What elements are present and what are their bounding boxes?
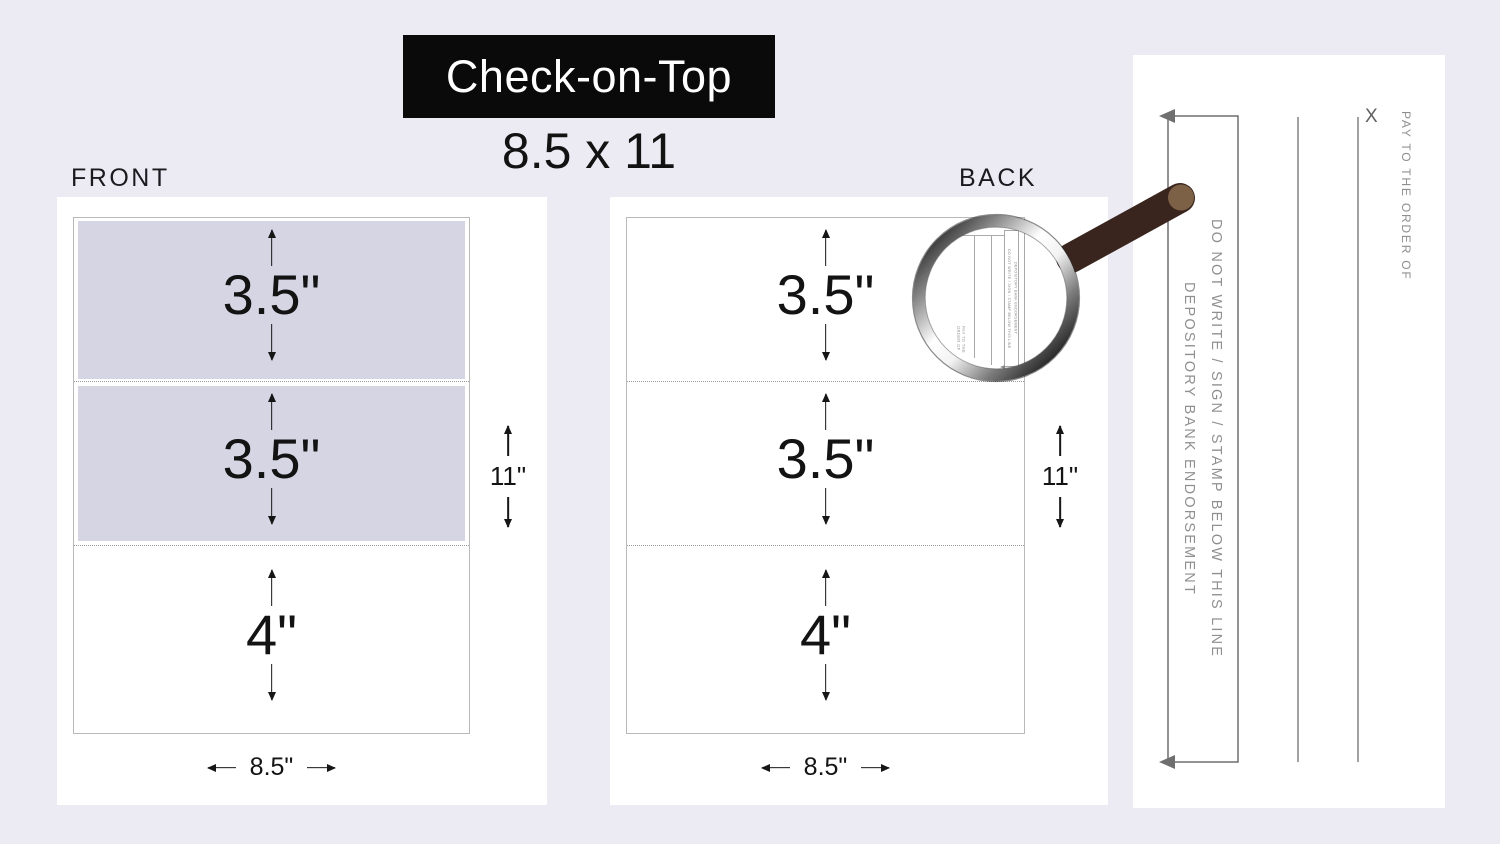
down-arrow-icon bbox=[819, 324, 832, 360]
up-arrow-icon bbox=[819, 570, 832, 606]
up-arrow-icon bbox=[502, 426, 515, 456]
left-arrow-icon bbox=[762, 762, 790, 773]
do-not-write-line: DO NOT WRITE / SIGN / STAMP BELOW THIS L… bbox=[1202, 116, 1229, 762]
front-width-dimension: 8.5" bbox=[73, 753, 470, 782]
dimension-label: 8.5" bbox=[804, 753, 848, 782]
endorsement-line bbox=[974, 235, 975, 358]
down-arrow-icon bbox=[265, 664, 278, 700]
right-arrow-icon bbox=[307, 762, 335, 773]
up-arrow-icon bbox=[265, 570, 278, 606]
pay-to-the-order-of-label: PAY TO THE ORDER OF bbox=[1399, 111, 1413, 281]
title-banner: Check-on-Top bbox=[403, 35, 775, 118]
down-arrow-icon bbox=[819, 664, 832, 700]
down-arrow-icon bbox=[502, 497, 515, 527]
down-arrow-icon bbox=[1054, 497, 1067, 527]
endorsement-panel: X PAY TO THE ORDER OF DO NOT WRITE / SIG… bbox=[1133, 55, 1445, 808]
dimension-label: 3.5" bbox=[777, 433, 875, 485]
up-arrow-icon bbox=[265, 230, 278, 266]
front-card: 3.5" 3.5" 4" 11" 8.5" bbox=[57, 197, 547, 805]
down-arrow-icon bbox=[265, 488, 278, 524]
back-height-dimension: 11" bbox=[1038, 426, 1082, 527]
sheet-edge-line bbox=[1024, 227, 1025, 369]
back-section2-dimension: 3.5" bbox=[627, 394, 1024, 524]
perforation-line bbox=[627, 381, 1024, 382]
dimension-label: 3.5" bbox=[223, 433, 321, 485]
perforation-line bbox=[74, 381, 469, 382]
down-arrow-icon bbox=[819, 488, 832, 524]
left-arrow-icon bbox=[208, 762, 236, 773]
front-height-dimension: 11" bbox=[486, 426, 530, 527]
dimension-label: 4" bbox=[800, 609, 851, 661]
page-title: Check-on-Top bbox=[446, 51, 732, 103]
check-on-top-infographic: Check-on-Top 8.5 x 11 FRONT BACK 3.5" 3.… bbox=[0, 0, 1500, 844]
signature-x-mark-small: x bbox=[956, 357, 959, 363]
back-section3-dimension: 4" bbox=[627, 570, 1024, 700]
front-section2-dimension: 3.5" bbox=[74, 394, 469, 524]
front-section3-dimension: 4" bbox=[74, 570, 469, 700]
magnifier-lens-view: PAY TO THE ORDER OF x DO NOT WRITE / SIG… bbox=[925, 227, 1067, 369]
right-arrow-icon bbox=[861, 762, 889, 773]
up-arrow-icon bbox=[1054, 426, 1067, 456]
back-width-dimension: 8.5" bbox=[626, 753, 1025, 782]
up-arrow-icon bbox=[819, 230, 832, 266]
dimension-label: 8.5" bbox=[250, 753, 294, 782]
dimension-label: 3.5" bbox=[777, 269, 875, 321]
signature-x-mark: X bbox=[1365, 106, 1378, 128]
back-heading: BACK bbox=[959, 164, 1037, 193]
front-heading: FRONT bbox=[71, 164, 170, 193]
do-not-write-line-small: DO NOT WRITE / SIGN / STAMP BELOW THIS L… bbox=[1006, 231, 1012, 366]
up-arrow-icon bbox=[265, 394, 278, 430]
up-arrow-icon bbox=[819, 394, 832, 430]
perforation-line bbox=[627, 545, 1024, 546]
depository-line-small: DEPOSITORY BANK ENDORSEMENT bbox=[1012, 231, 1018, 366]
dimension-label: 11" bbox=[1042, 461, 1078, 492]
dimension-label: 3.5" bbox=[223, 269, 321, 321]
endorsement-line bbox=[991, 235, 992, 365]
front-sheet: 3.5" 3.5" 4" bbox=[73, 217, 470, 734]
paper-size-label: 8.5 x 11 bbox=[403, 122, 775, 180]
perforation-line bbox=[74, 545, 469, 546]
dimension-label: 11" bbox=[490, 461, 526, 492]
down-arrow-icon bbox=[265, 324, 278, 360]
depository-line: DEPOSITORY BANK ENDORSEMENT bbox=[1175, 116, 1202, 762]
front-section1-dimension: 3.5" bbox=[74, 230, 469, 360]
dimension-label: 4" bbox=[246, 609, 297, 661]
do-not-write-notice: DO NOT WRITE / SIGN / STAMP BELOW THIS L… bbox=[1168, 116, 1238, 762]
do-not-write-box-small: DO NOT WRITE / SIGN / STAMP BELOW THIS L… bbox=[1004, 230, 1019, 367]
